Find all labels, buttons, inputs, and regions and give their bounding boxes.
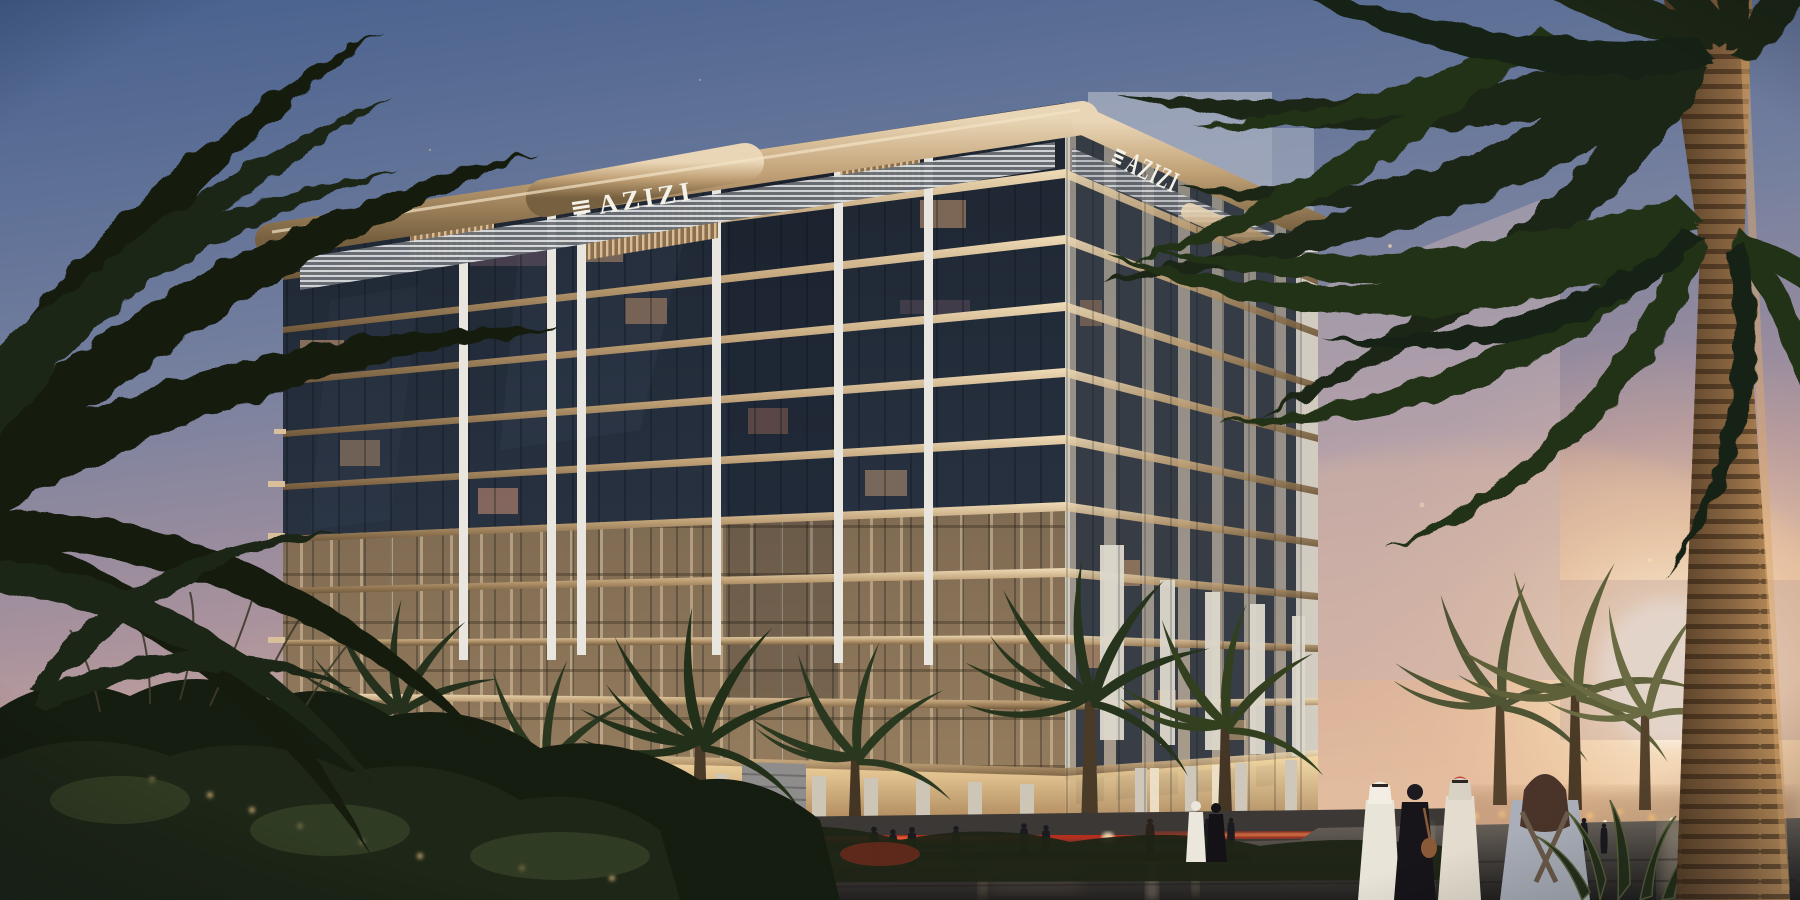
scene-canvas: AZIZI AZIZI bbox=[0, 0, 1800, 900]
vignette bbox=[0, 0, 1800, 900]
architectural-render: AZIZI AZIZI bbox=[0, 0, 1800, 900]
